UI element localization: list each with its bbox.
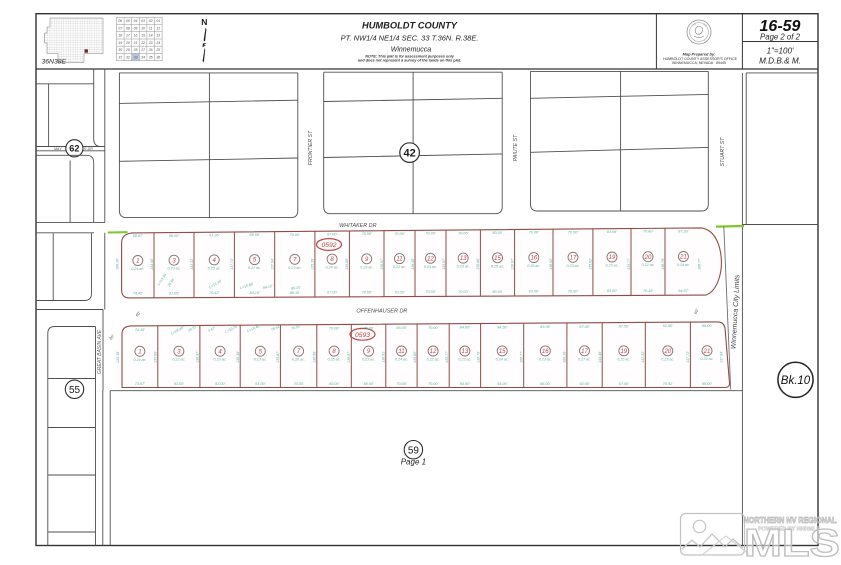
svg-text:13: 13 <box>460 256 467 262</box>
svg-text:83.06': 83.06' <box>607 230 618 234</box>
svg-text:67.50': 67.50' <box>619 325 630 329</box>
svg-text:93.00': 93.00' <box>174 382 185 386</box>
svg-text:137.04': 137.04' <box>271 258 275 270</box>
svg-text:16: 16 <box>134 34 138 38</box>
svg-text:0.23 ac.: 0.23 ac. <box>288 266 301 270</box>
svg-text:16: 16 <box>542 349 549 355</box>
svg-text:0.24 ac.: 0.24 ac. <box>700 357 713 361</box>
svg-text:06: 06 <box>118 19 122 23</box>
svg-text:10: 10 <box>141 26 145 30</box>
svg-text:75.00': 75.00' <box>363 326 374 330</box>
svg-text:0.23 ac.: 0.23 ac. <box>458 358 471 362</box>
svg-text:67.00': 67.00' <box>327 232 338 236</box>
svg-text:0.27 ac.: 0.27 ac. <box>248 266 261 270</box>
svg-text:18: 18 <box>118 34 122 38</box>
svg-text:19: 19 <box>620 349 627 355</box>
svg-text:135.39': 135.39' <box>311 258 315 270</box>
svg-text:19: 19 <box>118 41 122 45</box>
svg-text:70.00': 70.00' <box>293 382 304 386</box>
svg-text:17: 17 <box>581 349 588 355</box>
svg-text:87.00': 87.00' <box>579 325 590 329</box>
svg-text:05: 05 <box>126 19 130 23</box>
svg-text:22: 22 <box>140 41 145 45</box>
svg-text:68.00': 68.00' <box>169 234 180 238</box>
svg-text:03: 03 <box>141 19 145 23</box>
svg-text:94.57': 94.57' <box>678 289 689 293</box>
svg-text:91.05': 91.05' <box>169 291 180 295</box>
svg-text:70.60': 70.60' <box>643 230 654 234</box>
svg-text:94.00': 94.00' <box>497 382 508 386</box>
svg-text:23: 23 <box>148 41 153 45</box>
svg-text:36N38E: 36N38E <box>42 59 67 66</box>
svg-text:13: 13 <box>156 34 160 38</box>
svg-text:07: 07 <box>118 26 122 30</box>
svg-text:135.39': 135.39' <box>116 351 120 363</box>
svg-text:0.23 ac.: 0.23 ac. <box>457 265 470 269</box>
svg-text:0.24 ac.: 0.24 ac. <box>424 265 437 269</box>
svg-text:20: 20 <box>125 41 130 45</box>
svg-text:144.46': 144.46' <box>150 258 154 270</box>
svg-text:OFFENHAUSER DR: OFFENHAUSER DR <box>356 309 407 315</box>
svg-text:137.72': 137.72' <box>230 258 234 270</box>
svg-text:0.24 ac.: 0.24 ac. <box>677 263 690 267</box>
svg-text:MAY: MAY <box>54 147 62 151</box>
svg-text:13: 13 <box>462 349 469 355</box>
svg-text:70.00': 70.00' <box>458 290 469 294</box>
svg-text:135.77': 135.77' <box>627 258 631 270</box>
svg-text:70.92': 70.92' <box>663 382 674 386</box>
svg-text:138.92': 138.92' <box>549 258 553 270</box>
svg-text:67.00': 67.00' <box>327 291 338 295</box>
svg-text:0592: 0592 <box>321 242 336 249</box>
svg-text:0.25 ac.: 0.25 ac. <box>208 266 221 270</box>
svg-text:M.D.B.& M.: M.D.B.& M. <box>759 57 801 66</box>
svg-text:0.24 ac.: 0.24 ac. <box>131 267 144 271</box>
svg-text:100.10': 100.10' <box>563 351 567 363</box>
svg-text:91.00': 91.00' <box>255 382 266 386</box>
svg-text:24: 24 <box>155 41 160 45</box>
svg-text:70.00': 70.00' <box>568 230 579 234</box>
svg-text:0.23 ac.: 0.23 ac. <box>605 264 618 268</box>
svg-text:R DR: R DR <box>84 147 93 151</box>
svg-text:70.00': 70.00' <box>428 382 439 386</box>
svg-text:135.00': 135.00' <box>345 258 349 270</box>
svg-text:86.00': 86.00' <box>540 382 551 386</box>
svg-text:136.00': 136.00' <box>476 258 480 270</box>
svg-text:61.36': 61.36' <box>209 234 220 238</box>
svg-text:74.45': 74.45' <box>133 292 144 296</box>
svg-text:0.26 ac.: 0.26 ac. <box>292 358 305 362</box>
svg-text:88.15': 88.15' <box>290 291 301 295</box>
svg-text:1: 1 <box>136 259 139 265</box>
svg-text:84.00': 84.00' <box>460 382 471 386</box>
svg-text:20: 20 <box>663 349 671 355</box>
svg-text:135.82': 135.82' <box>589 258 593 270</box>
svg-text:143.32': 143.32' <box>641 351 645 363</box>
svg-text:70.00': 70.00' <box>396 382 407 386</box>
svg-text:137.04': 137.04' <box>720 351 724 363</box>
svg-text:83.00': 83.00' <box>529 290 540 294</box>
svg-text:0.22 ac.: 0.22 ac. <box>427 358 440 362</box>
svg-text:70.00': 70.00' <box>425 290 436 294</box>
svg-text:16: 16 <box>530 256 537 262</box>
svg-text:27: 27 <box>140 48 145 52</box>
svg-text:09: 09 <box>134 26 138 30</box>
svg-text:0593: 0593 <box>355 332 370 339</box>
svg-text:12: 12 <box>427 256 434 262</box>
svg-text:74.45': 74.45' <box>135 328 146 332</box>
svg-text:26: 26 <box>148 48 153 52</box>
svg-text:0.24 ac.: 0.24 ac. <box>133 358 146 362</box>
svg-text:138.79': 138.79' <box>476 351 480 363</box>
svg-text:136.40': 136.40' <box>236 351 240 363</box>
svg-text:62.50': 62.50' <box>663 324 674 328</box>
svg-text:WHITAKER DR: WHITAKER DR <box>339 223 376 229</box>
svg-text:Page 2 of 2: Page 2 of 2 <box>760 33 801 42</box>
svg-text:70.00': 70.00' <box>362 290 373 294</box>
svg-text:70.00': 70.00' <box>394 290 405 294</box>
svg-text:21: 21 <box>703 349 711 355</box>
svg-text:137.72': 137.72' <box>686 351 690 363</box>
svg-text:80.00': 80.00' <box>492 231 503 235</box>
svg-text:Page 1: Page 1 <box>401 458 426 467</box>
svg-text:0.25 ac.: 0.25 ac. <box>328 358 341 362</box>
svg-text:87.26': 87.26' <box>678 229 689 233</box>
svg-text:95.00': 95.00' <box>702 324 713 328</box>
svg-text:93.00': 93.00' <box>215 382 226 386</box>
svg-text:34: 34 <box>141 55 145 59</box>
svg-text:0.23 ac.: 0.23 ac. <box>539 357 552 361</box>
svg-text:83.00': 83.00' <box>607 289 618 293</box>
svg-text:70.00': 70.00' <box>529 231 540 235</box>
svg-text:15: 15 <box>494 256 501 262</box>
svg-text:0.23 ac.: 0.23 ac. <box>661 357 674 361</box>
svg-text:88.00': 88.00' <box>363 382 374 386</box>
svg-text:FRONTIER ST: FRONTIER ST <box>308 130 314 165</box>
svg-text:138.87': 138.87' <box>510 258 514 270</box>
svg-text:17: 17 <box>126 34 130 38</box>
svg-text:19: 19 <box>609 255 616 261</box>
svg-text:25: 25 <box>155 48 160 52</box>
svg-text:135.82': 135.82' <box>413 351 417 363</box>
svg-text:94.50': 94.50' <box>497 325 508 329</box>
svg-text:84.15': 84.15' <box>249 291 260 295</box>
svg-text:135.77': 135.77' <box>445 351 449 363</box>
svg-text:66.00': 66.00' <box>396 326 407 330</box>
svg-text:0.22 ac.: 0.22 ac. <box>172 358 185 362</box>
svg-text:58.67': 58.67' <box>133 234 144 238</box>
svg-text:100.10': 100.10' <box>116 258 120 270</box>
svg-text:70.00': 70.00' <box>428 326 439 330</box>
svg-text:70.00': 70.00' <box>425 232 436 236</box>
svg-text:32: 32 <box>126 55 130 59</box>
svg-text:138.79': 138.79' <box>661 258 665 270</box>
svg-text:135.87': 135.87' <box>276 351 280 363</box>
svg-text:12: 12 <box>156 26 160 30</box>
svg-text:0.23 ac.: 0.23 ac. <box>566 264 579 268</box>
svg-text:135.00': 135.00' <box>154 351 158 363</box>
svg-text:N: N <box>201 17 207 27</box>
svg-text:80.00': 80.00' <box>492 290 503 294</box>
svg-text:11: 11 <box>149 26 153 30</box>
svg-text:70.42': 70.42' <box>209 291 220 295</box>
svg-text:138.92': 138.92' <box>382 351 386 363</box>
svg-text:20: 20 <box>644 255 652 261</box>
svg-text:73.67': 73.67' <box>135 382 146 386</box>
svg-text:83.06': 83.06' <box>540 325 551 329</box>
svg-text:35: 35 <box>149 55 153 59</box>
svg-text:1: 1 <box>138 349 141 355</box>
svg-text:136.00': 136.00' <box>313 351 317 363</box>
svg-text:42: 42 <box>403 148 415 160</box>
svg-text:0.24 ac.: 0.24 ac. <box>395 358 408 362</box>
svg-text:1"=100': 1"=100' <box>767 47 794 56</box>
svg-text:21: 21 <box>679 255 687 261</box>
svg-text:0.23 ac.: 0.23 ac. <box>362 358 375 362</box>
svg-text:0.22 ac.: 0.22 ac. <box>641 263 654 267</box>
svg-text:66.00': 66.00' <box>249 233 260 237</box>
svg-text:0.26 ac.: 0.26 ac. <box>527 264 540 268</box>
svg-text:02: 02 <box>149 19 153 23</box>
svg-text:92.00': 92.00' <box>579 382 590 386</box>
svg-text:70.00': 70.00' <box>458 231 469 235</box>
svg-text:62: 62 <box>69 144 79 154</box>
svg-text:31: 31 <box>118 55 122 59</box>
svg-text:0.23 ac.: 0.23 ac. <box>360 265 373 269</box>
svg-text:0.22 ac.: 0.22 ac. <box>393 265 406 269</box>
svg-text:67.00': 67.00' <box>619 382 630 386</box>
svg-text:136.40': 136.40' <box>411 258 415 270</box>
svg-text:29: 29 <box>125 48 130 52</box>
svg-text:PAIUTE ST: PAIUTE ST <box>513 134 519 161</box>
svg-text:0.24 ac.: 0.24 ac. <box>326 266 339 270</box>
svg-text:143.32': 143.32' <box>190 258 194 270</box>
svg-text:04: 04 <box>134 19 138 23</box>
svg-text:GREAT BASIN AVE: GREAT BASIN AVE <box>97 329 103 374</box>
svg-text:136.97': 136.97' <box>380 258 384 270</box>
svg-text:21: 21 <box>133 41 138 45</box>
svg-text:15: 15 <box>499 349 506 355</box>
svg-text:MLS: MLS <box>744 522 840 560</box>
svg-text:70.00': 70.00' <box>568 289 579 293</box>
svg-text:0.23 ac.: 0.23 ac. <box>214 358 227 362</box>
svg-text:70.00': 70.00' <box>329 327 340 331</box>
svg-text:08: 08 <box>126 26 130 30</box>
svg-text:70.06': 70.06' <box>362 232 373 236</box>
svg-text:55: 55 <box>69 385 81 396</box>
svg-text:Winnemucca: Winnemucca <box>391 47 432 54</box>
svg-text:69.00': 69.00' <box>329 382 340 386</box>
svg-text:30: 30 <box>118 48 122 52</box>
svg-text:70.00': 70.00' <box>290 233 301 237</box>
svg-text:0.23 ac.: 0.23 ac. <box>254 358 267 362</box>
svg-text:70.19': 70.19' <box>643 289 654 293</box>
svg-text:11: 11 <box>396 257 402 263</box>
svg-text:14: 14 <box>149 34 153 38</box>
svg-text:135.87': 135.87' <box>442 258 446 270</box>
svg-text:95.00': 95.00' <box>702 382 713 386</box>
svg-text:106.77': 106.77' <box>698 258 702 270</box>
svg-text:138.87': 138.87' <box>347 351 351 363</box>
svg-text:12: 12 <box>430 349 437 355</box>
svg-text:and does not represent a surve: and does not represent a survey of the l… <box>358 59 461 63</box>
svg-text:33: 33 <box>134 55 138 59</box>
svg-text:WINNEMUCCA, NEVADA 89445: WINNEMUCCA, NEVADA 89445 <box>672 60 727 65</box>
svg-text:0.25 ac.: 0.25 ac. <box>617 357 630 361</box>
svg-text:144.46': 144.46' <box>598 351 602 363</box>
svg-text:0.23 ac.: 0.23 ac. <box>167 267 180 271</box>
svg-text:Bk.10: Bk.10 <box>781 375 811 387</box>
svg-text:136.97': 136.97' <box>196 351 200 363</box>
svg-text:HUMBOLDT COUNTY: HUMBOLDT COUNTY <box>362 21 458 31</box>
svg-text:0.24 ac.: 0.24 ac. <box>496 357 509 361</box>
svg-text:70.00': 70.00' <box>394 232 405 236</box>
svg-text:17: 17 <box>570 255 577 261</box>
svg-text:STUART ST: STUART ST <box>720 137 726 167</box>
svg-text:59: 59 <box>408 445 420 456</box>
svg-text:36: 36 <box>156 55 160 59</box>
svg-text:PT. NW1/4 NE1/4 SEC. 33 T.36N.: PT. NW1/4 NE1/4 SEC. 33 T.36N. R.38E. <box>341 34 479 43</box>
svg-text:0.27 ac.: 0.27 ac. <box>578 357 591 361</box>
svg-text:01: 01 <box>156 19 160 23</box>
svg-text:11: 11 <box>398 349 404 355</box>
svg-text:106.77': 106.77' <box>520 351 524 363</box>
svg-text:84.00': 84.00' <box>460 326 471 330</box>
svg-text:15: 15 <box>141 34 145 38</box>
svg-text:28: 28 <box>133 48 138 52</box>
svg-text:0.25 ac.: 0.25 ac. <box>491 264 504 268</box>
